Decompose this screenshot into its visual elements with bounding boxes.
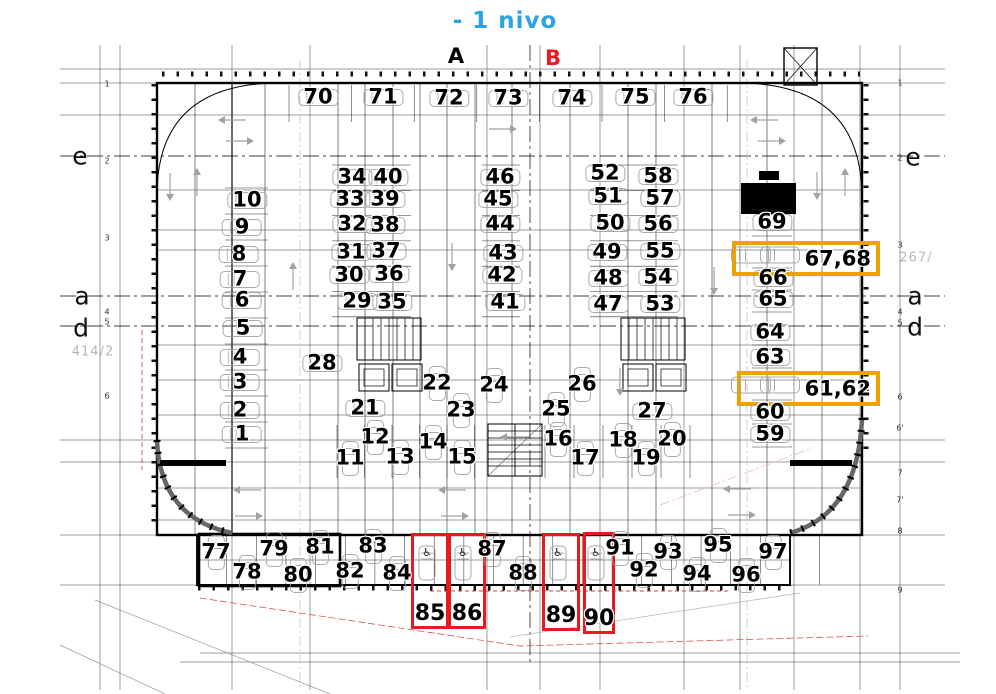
pile-ticks [154,74,866,588]
highlight-box-label: 86 [452,603,483,625]
direction-arrow-icon [489,125,517,133]
accessible-spot-highlight-89: 89 [542,533,580,631]
accessible-spot-highlight-86: 86 [448,533,486,629]
direction-arrow-icon [441,512,469,520]
highlight-box-label: 85 [415,603,446,625]
direction-arrow-icon [710,267,718,295]
direction-arrow-icon [226,137,254,145]
highlight-box-label: 61,62 [805,378,871,399]
direction-arrow-icon [235,512,263,520]
grid-axis-number: 9 [897,586,902,595]
direction-arrow-icon [233,486,261,494]
double-spot-highlight-61-62: 61,62 [737,371,880,406]
highlight-box-label: 90 [584,608,615,630]
grid-axis-number: 6 [104,392,109,401]
direction-arrow-icon [193,168,201,196]
direction-arrow-icon [289,262,297,290]
grid-axis-number: 5 [897,319,902,328]
highlight-box-label: 89 [546,605,577,627]
grid-axis-number: 4 [897,308,902,317]
direction-arrow-icon [841,168,849,196]
direction-arrow-icon [728,511,756,519]
grid-axis-number: 2 [897,154,902,163]
inner-verticals [195,83,822,535]
double-spot-highlight-67-68: 67,68 [732,241,880,276]
grid-axis-number: 2 [104,157,109,166]
plan-lines-layer [0,0,996,694]
grid-axis-number: 6 [897,393,902,402]
accessible-spot-highlight-85: 85 [411,533,449,629]
direction-arrow-icon [750,116,778,124]
grid-axis-number: 7 [897,469,902,478]
shaft-icon [784,48,817,85]
grid-axis-number: 7' [896,496,903,505]
direction-arrow-icon [438,486,466,494]
grid-axis-number: 8 [897,527,902,536]
grid-axis-number: 3 [104,234,109,243]
direction-arrow-icon [758,137,786,145]
grid-axis-number: 3 [897,241,902,250]
grid-axis-number: 1 [897,79,902,88]
grid-axis-number: 5 [104,318,109,327]
grid-axis-number: 4 [104,308,109,317]
grid-axis-number: 6' [896,424,903,433]
building-outline [157,83,862,586]
direction-arrow-icon [166,173,174,201]
stairs-icon-center [488,424,542,476]
axis-dashdot-lines [60,45,945,665]
direction-arrow-icon [448,243,456,271]
generated-bay-dividers [197,85,820,585]
direction-arrow-icon [723,485,751,493]
grid-axis-number: 1 [104,80,109,89]
accessible-spot-highlight-90: 90 [583,532,615,634]
highlight-box-label: 67,68 [805,248,871,269]
direction-arrow-icon [813,172,821,200]
lane-arrows [166,116,849,520]
floor-plan: - 1 nivo A B e a d e a d 414/2 267/ 8586… [0,0,996,694]
